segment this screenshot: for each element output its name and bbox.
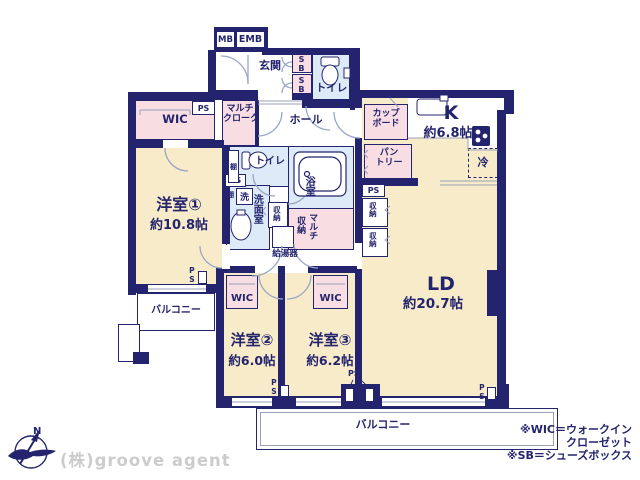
water-heater-label: 給湯器 xyxy=(266,250,304,260)
multi-storage-left-label: 収納 xyxy=(295,216,305,234)
ld-closet2-label: 収納 xyxy=(368,232,376,247)
balcony-left-label: バルコニー xyxy=(145,305,207,317)
multi-cloak-label: マルチクローク xyxy=(223,104,257,124)
washroom-label: 洗面室 xyxy=(251,194,262,224)
washroom-shelf-label: 棚 xyxy=(227,192,234,200)
living-size: 約20.7帖 xyxy=(399,297,467,313)
floor-plan: MB EMB PS PS PS 洗 棚 xyxy=(0,0,640,480)
ld-closet1-label: 収納 xyxy=(368,202,376,217)
bedroom2-size: 約6.0帖 xyxy=(225,353,279,368)
washbasin-icon xyxy=(231,210,251,240)
closet-small-label: 収納 xyxy=(272,206,280,221)
toilet-icon-1 xyxy=(321,57,350,85)
toilet2-label: トイレ xyxy=(252,156,288,168)
plan-linework xyxy=(0,0,640,480)
hall-label: ホール xyxy=(284,113,328,127)
wic1-label: WIC xyxy=(150,112,200,127)
kitchen-size: 約6.8帖 xyxy=(418,127,478,142)
fridge-label: 冷 xyxy=(470,151,496,175)
bedroom1-name: 洋室① xyxy=(150,195,208,214)
ps-pointer-lines xyxy=(349,380,369,388)
bedroom3-size: 約6.2帖 xyxy=(303,353,357,368)
wic3-label: WIC xyxy=(313,292,348,306)
ps-label-pillar: PS xyxy=(348,370,360,379)
bathtub-icon xyxy=(294,152,346,196)
watermark: (株)groove agent xyxy=(60,447,231,471)
entrance-label: 玄関 xyxy=(250,59,290,73)
toilet1-label: トイレ xyxy=(313,82,350,95)
ps-label-bed1: PS xyxy=(187,266,195,284)
multi-storage-right-label: マルチ xyxy=(307,213,317,240)
bedroom2-name: 洋室② xyxy=(226,331,278,349)
wic2-label: WIC xyxy=(226,292,258,306)
ps-label-bed2: PS xyxy=(269,378,277,396)
living-name: LD xyxy=(420,274,462,296)
bedroom1-size: 約10.8帖 xyxy=(145,219,213,234)
legend-notes: ※WIC＝ウォークイン クローゼット ※SB＝シューズボックス xyxy=(500,423,632,463)
cupboard-label: カップボード xyxy=(366,109,406,129)
pantry-label: パントリー xyxy=(369,148,409,168)
ps-label-ld: PS xyxy=(477,383,485,401)
compass-icon xyxy=(8,429,56,468)
shoebox1-label: SB xyxy=(296,55,305,73)
compass-north-label: N xyxy=(33,426,41,437)
kitchen-name: K xyxy=(438,103,464,125)
balcony-bottom-label: バルコニー xyxy=(350,419,416,432)
bedroom3-name: 洋室③ xyxy=(304,331,356,349)
shoebox2-label: SB xyxy=(296,76,305,94)
bath-label: 浴室 xyxy=(303,176,314,196)
